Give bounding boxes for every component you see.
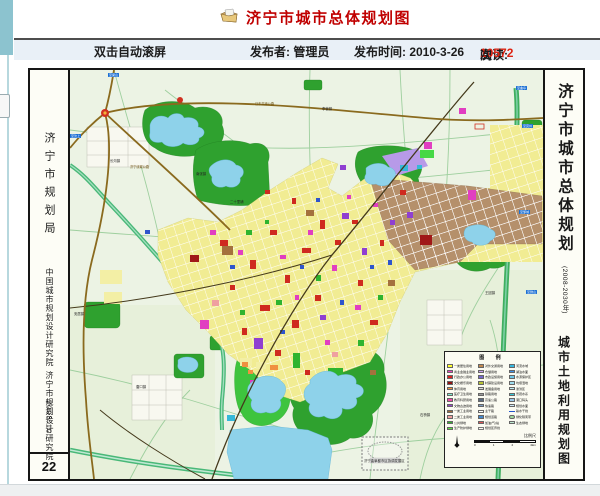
map-sheet-name: 城市土地利用规划图 — [556, 336, 573, 467]
map-label: 长沟镇 — [110, 160, 120, 163]
map-label: 至梁山 — [108, 73, 119, 77]
map-title-vertical: 济宁市城市总体规划 — [553, 83, 575, 254]
planning-map-image: 济宁市规划局 中国城市规划设计研究院 济宁市规划设计研究院 2008.10 22 — [28, 68, 585, 481]
sheet-number: 22 — [30, 452, 68, 479]
legend-title: 图 例 — [447, 354, 538, 361]
auto-scroll-control[interactable]: 双击自动滚屏 — [94, 43, 166, 60]
scale-label: 比例尺 — [474, 433, 536, 439]
agency-name: 济宁市规划局 — [41, 132, 57, 240]
map-label: 二十里铺 — [230, 201, 244, 204]
page-edge-block — [0, 0, 13, 55]
map-label: 至邹城 — [519, 210, 530, 214]
map-title-years: (2008-2030年) — [559, 266, 569, 314]
scale-bar: 比例尺 0124km — [474, 433, 536, 447]
coordination-zone — [362, 437, 408, 470]
map-legend: 图 例 一类居住用地对外交通用地河流水域商业金融业用地仓储用地湖泊水面行政办公用… — [444, 351, 541, 468]
map-label: 至兖州 — [522, 124, 533, 128]
legend-footer: ◆ 比例尺 0124km — [447, 433, 538, 459]
map-label: 南张镇 — [196, 173, 206, 176]
meta-bar: 双击自动滚屏 发布者: 管理员 发布时间: 2010-3-26 阅读: 1057… — [14, 38, 600, 60]
map-label: 至微山 — [526, 290, 537, 294]
map-label: 唐口镇 — [136, 386, 146, 389]
map-label: 王因镇 — [485, 292, 495, 295]
map-label: 济宁曲阜都市区协调发展区 — [364, 460, 405, 463]
page-edge-line — [7, 55, 9, 496]
legend-rows: 一类居住用地对外交通用地河流水域商业金融业用地仓储用地湖泊水面行政办公用地市政设… — [447, 363, 538, 431]
page-edge-fragment — [0, 94, 10, 118]
map-right-titleblock: 济宁市城市总体规划 (2008-2030年) 城市土地利用规划图 — [543, 70, 583, 479]
map-label: 安居镇 — [74, 313, 84, 316]
map-date: 2008.10 — [45, 400, 54, 434]
scale-ticks: 0124km — [474, 443, 536, 447]
institute-1: 中国城市规划设计研究院 — [44, 268, 55, 367]
map-label: 日东高速公路 — [255, 103, 274, 106]
publisher-text: 发布者: 管理员 — [250, 43, 329, 60]
publish-time-text: 发布时间: 2010-3-26 — [354, 43, 464, 60]
page-title: 济宁市城市总体规划图 — [246, 7, 411, 28]
map-label: 济宁绕城公路 — [130, 166, 149, 169]
map-label: 石桥镇 — [420, 414, 430, 417]
map-label: 李营镇 — [322, 108, 332, 111]
article-page: 济宁市城市总体规划图 双击自动滚屏 发布者: 管理员 发布时间: 2010-3-… — [0, 0, 600, 496]
article-header: 济宁市城市总体规划图 — [14, 0, 600, 38]
page-bottom-strip — [0, 484, 600, 496]
map-canvas: 长沟镇南张镇二十里铺李营镇安居镇唐口镇石桥镇接庄镇王因镇日东高速公路济宁绕城公路… — [70, 70, 543, 479]
map-label: 至曲阜 — [516, 86, 527, 90]
map-left-titleblock: 济宁市规划局 中国城市规划设计研究院 济宁市规划设计研究院 2008.10 22 — [30, 70, 70, 479]
folder-icon — [218, 6, 240, 25]
reads-suffix: 次 — [480, 46, 492, 63]
map-label: 至汶上 — [70, 134, 81, 138]
compass-icon: ◆ — [451, 435, 463, 448]
